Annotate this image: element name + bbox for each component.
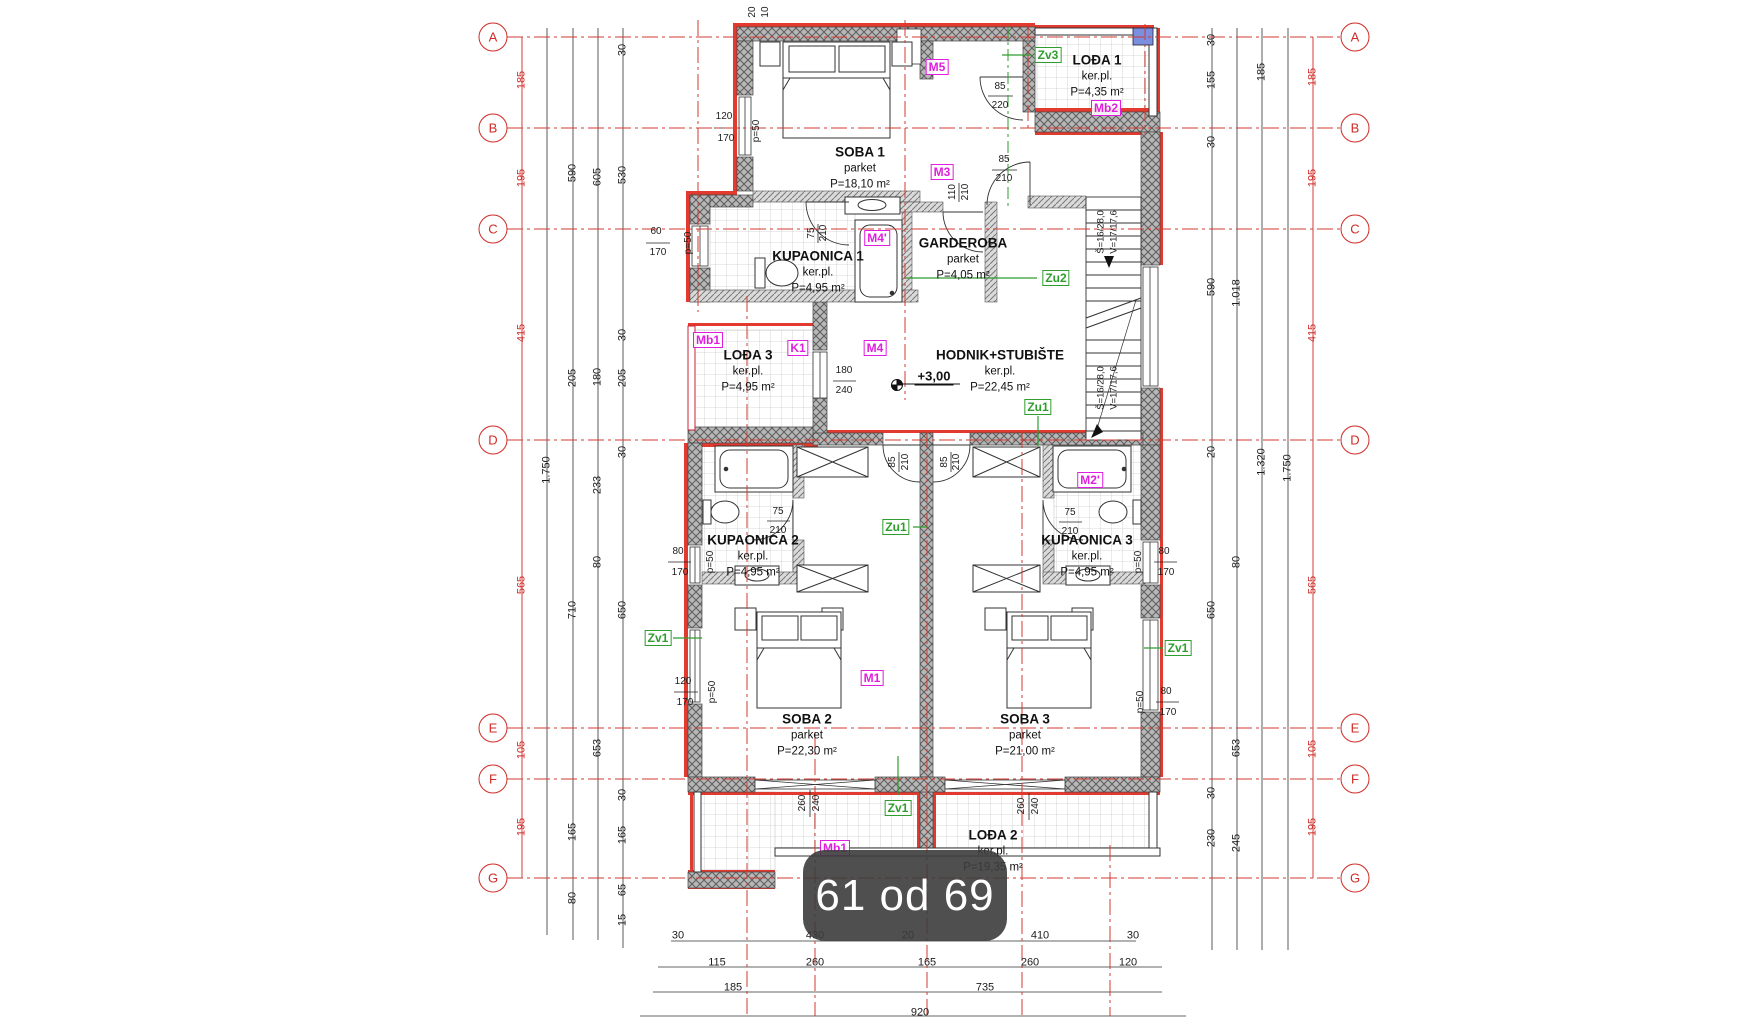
grid-bubble-right-E: E — [1341, 714, 1370, 743]
room-area: P=22,45 m² — [970, 382, 1030, 394]
dim-label: 30 — [1207, 136, 1218, 148]
dim-label: p=50 — [752, 120, 762, 143]
dim-label: 105 — [1308, 740, 1319, 758]
dim-label: 1.018 — [1232, 279, 1243, 307]
opening-tag-Zu1: Zu1 — [1024, 399, 1051, 415]
dim-label: 920 — [911, 1008, 929, 1019]
dim-label: 170 — [677, 698, 694, 708]
dim-label: 1.320 — [1257, 448, 1268, 476]
room-name: KUPAONICA 3 — [1041, 533, 1133, 547]
dim-label: 170 — [650, 248, 667, 258]
grid-bubble-left-G: G — [479, 864, 508, 893]
dim-label: 195 — [517, 169, 528, 187]
dim-label: 220 — [992, 101, 1009, 111]
dim-label: 185 — [1257, 63, 1268, 81]
dim-label: 180 — [593, 368, 604, 386]
dim-label: 590 — [1207, 278, 1218, 296]
stair-note: Š=16/28,0 — [1096, 210, 1106, 254]
dim-label: 245 — [1232, 834, 1243, 852]
stair-note: V=17/17,6 — [1109, 210, 1119, 254]
room-floor: ker.pl. — [985, 366, 1016, 378]
dim-label: 115 — [708, 958, 726, 969]
room-name: SOBA 2 — [782, 712, 832, 726]
dim-label: 30 — [618, 446, 629, 458]
room-floor: ker.pl. — [733, 366, 764, 378]
dim-label: 260 — [1017, 798, 1027, 815]
grid-bubble-left-B: B — [479, 114, 508, 143]
dim-label: 30 — [618, 329, 629, 341]
dim-label: 415 — [517, 324, 528, 342]
room-name: SOBA 1 — [835, 145, 885, 159]
room-area: P=4,95 m² — [1060, 567, 1113, 579]
dim-label: 650 — [1207, 601, 1218, 619]
room-name: GARDEROBA — [919, 236, 1008, 250]
level-value: +3,00 — [915, 369, 954, 386]
dim-label: p=50 — [706, 551, 716, 574]
dim-label: 30 — [1127, 931, 1139, 942]
room-area: P=18,10 m² — [830, 179, 890, 191]
dim-label: 80 — [568, 892, 579, 904]
dim-label: 590 — [568, 164, 579, 182]
ref-tag-M1: M1 — [861, 670, 884, 686]
dim-label: 85 — [994, 82, 1005, 92]
grid-bubble-left-F: F — [479, 765, 508, 794]
page-indicator-text: 61 od 69 — [815, 871, 994, 921]
dim-label: 210 — [770, 526, 787, 536]
room-floor: parket — [791, 730, 823, 742]
dim-label: 410 — [1031, 931, 1049, 942]
dim-label: 260 — [798, 795, 808, 812]
dim-label: 195 — [1308, 818, 1319, 836]
room-floor: parket — [947, 254, 979, 266]
stair-note: Š=16/28,0 — [1096, 366, 1106, 410]
dim-label: 210 — [952, 454, 962, 471]
opening-tag-Zv3: Zv3 — [1035, 47, 1062, 63]
dim-label: 110 — [948, 184, 958, 200]
dim-label: 15 — [618, 914, 629, 926]
dim-label: 10 — [761, 6, 771, 17]
dim-label: 735 — [976, 983, 994, 994]
dim-label: 1.750 — [542, 456, 553, 484]
grid-bubble-right-D: D — [1341, 426, 1370, 455]
room-name: SOBA 3 — [1000, 712, 1050, 726]
dim-label: 120 — [716, 112, 733, 122]
room-area: P=4,95 m² — [721, 382, 774, 394]
dim-label: 240 — [836, 386, 853, 396]
dim-label: 205 — [568, 369, 579, 387]
dim-label: p=50 — [708, 681, 718, 704]
dim-label: 653 — [593, 739, 604, 757]
dim-label: 165 — [618, 826, 629, 844]
room-area: P=4,35 m² — [1070, 87, 1123, 99]
dim-label: 170 — [1160, 708, 1177, 718]
ref-tag-M5: M5 — [926, 59, 949, 75]
dim-label: 120 — [675, 677, 692, 687]
room-area: P=4,95 m² — [726, 567, 779, 579]
dim-label: 30 — [618, 44, 629, 56]
room-area: P=4,95 m² — [791, 283, 844, 295]
room-name: LOĐA 3 — [723, 348, 772, 362]
grid-bubble-left-E: E — [479, 714, 508, 743]
dim-label: 415 — [1308, 324, 1319, 342]
dim-label: 195 — [1308, 169, 1319, 187]
dim-label: 710 — [568, 601, 579, 619]
room-area: P=4,05 m² — [936, 270, 989, 282]
dim-label: 210 — [961, 184, 971, 201]
ref-tag-Mb1: Mb1 — [693, 332, 723, 348]
ref-tag-K1: K1 — [787, 340, 808, 356]
dim-label: 60 — [650, 227, 661, 237]
room-name: HODNIK+STUBIŠTE — [936, 348, 1064, 362]
room-area: P=22,30 m² — [777, 746, 837, 758]
dim-label: 20 — [1207, 446, 1218, 458]
grid-bubble-right-F: F — [1341, 765, 1370, 794]
floor-plan-page: AABBCCDDEEFFGGSOBA 1parketP=18,10 m²LOĐA… — [0, 0, 1747, 1026]
stair-note: V=17/17,6 — [1109, 366, 1119, 410]
room-area: P=21,00 m² — [995, 746, 1055, 758]
dim-label: 1.750 — [1283, 454, 1294, 482]
grid-bubble-right-B: B — [1341, 114, 1370, 143]
dim-label: 605 — [593, 168, 604, 186]
dim-label: 170 — [718, 134, 735, 144]
dim-label: 565 — [1308, 576, 1319, 594]
ref-tag-M4': M4' — [864, 230, 890, 246]
dim-label: 120 — [1119, 958, 1137, 969]
dim-label: 80 — [593, 556, 604, 568]
dim-label: 210 — [1062, 527, 1079, 537]
dim-label: 30 — [618, 789, 629, 801]
dim-label: 170 — [672, 568, 689, 578]
ref-tag-M2': M2' — [1077, 472, 1103, 488]
dim-label: 80 — [672, 547, 683, 557]
room-floor: ker.pl. — [1072, 551, 1103, 563]
room-name: KUPAONICA 1 — [772, 249, 864, 263]
room-floor: ker.pl. — [738, 551, 769, 563]
dim-label: 185 — [1308, 68, 1319, 86]
dim-label: 165 — [568, 823, 579, 841]
dim-label: 30 — [1207, 787, 1218, 799]
dim-label: p=50 — [684, 232, 694, 255]
ref-tag-M3: M3 — [931, 164, 954, 180]
dim-label: 210 — [901, 454, 911, 471]
room-floor: parket — [1009, 730, 1041, 742]
dim-label: 650 — [618, 601, 629, 619]
grid-bubble-left-C: C — [479, 215, 508, 244]
dim-label: 75 — [772, 507, 783, 517]
dim-label: 30 — [1207, 34, 1218, 46]
room-floor: ker.pl. — [803, 267, 834, 279]
room-floor: ker.pl. — [1082, 71, 1113, 83]
room-floor: parket — [844, 163, 876, 175]
dim-label: 80 — [1232, 556, 1243, 568]
opening-tag-Zv1: Zv1 — [885, 800, 912, 816]
dim-label: 530 — [618, 166, 629, 184]
dim-label: 65 — [618, 884, 629, 896]
grid-bubble-right-G: G — [1341, 864, 1370, 893]
dim-label: 195 — [517, 818, 528, 836]
dim-label: 155 — [1207, 71, 1218, 89]
dim-label: 653 — [1232, 739, 1243, 757]
dim-label: 180 — [836, 366, 853, 376]
page-indicator: 61 od 69 — [803, 850, 1007, 941]
dim-label: 85 — [888, 456, 898, 467]
dim-label: 565 — [517, 576, 528, 594]
room-name: LOĐA 2 — [968, 828, 1017, 842]
opening-tag-Zu1: Zu1 — [882, 519, 909, 535]
dim-label: 260 — [806, 958, 824, 969]
dim-label: 80 — [1160, 687, 1171, 697]
ref-tag-Mb2: Mb2 — [1091, 100, 1121, 116]
opening-tag-Zv1: Zv1 — [1165, 640, 1192, 656]
grid-bubble-left-A: A — [479, 23, 508, 52]
ref-tag-M4: M4 — [864, 340, 887, 356]
dim-label: 240 — [1031, 798, 1041, 815]
opening-tag-Zu2: Zu2 — [1042, 270, 1069, 286]
dim-label: 85 — [998, 155, 1009, 165]
dim-label: 205 — [618, 369, 629, 387]
dim-label: 233 — [593, 476, 604, 494]
dim-label: 75 — [807, 227, 817, 238]
dim-label: 210 — [996, 174, 1013, 184]
grid-bubble-left-D: D — [479, 426, 508, 455]
dim-label: 185 — [517, 71, 528, 89]
dim-label: 30 — [672, 931, 684, 942]
dim-label: 230 — [1207, 829, 1218, 847]
dim-label: 170 — [1158, 568, 1175, 578]
dim-label: 165 — [918, 958, 936, 969]
dim-label: 85 — [940, 456, 950, 467]
dim-label: 260 — [1021, 958, 1039, 969]
opening-tag-Zv1: Zv1 — [645, 630, 672, 646]
dim-label: p=50 — [1134, 551, 1144, 574]
grid-bubble-right-C: C — [1341, 215, 1370, 244]
dim-label: 185 — [724, 983, 742, 994]
dim-label: 75 — [1064, 508, 1075, 518]
room-name: LOĐA 1 — [1072, 53, 1121, 67]
dim-label: p=50 — [1136, 691, 1146, 714]
dim-label: 80 — [1158, 547, 1169, 557]
dim-label: 210 — [819, 225, 829, 242]
grid-bubble-right-A: A — [1341, 23, 1370, 52]
dim-label: 105 — [517, 741, 528, 759]
dim-label: 240 — [812, 795, 822, 812]
dim-label: 20 — [748, 6, 758, 17]
